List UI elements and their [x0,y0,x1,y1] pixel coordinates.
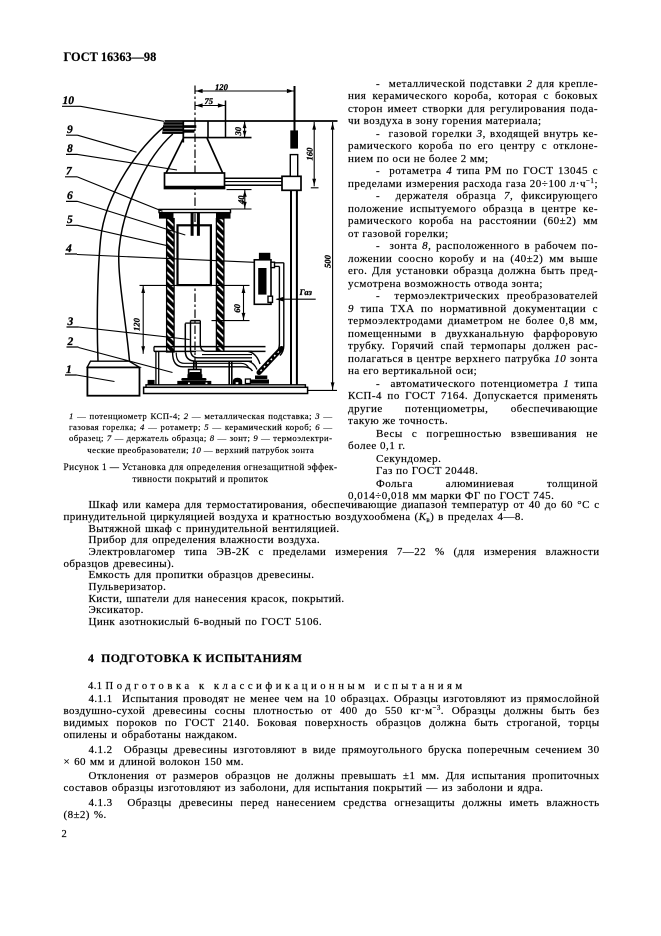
svg-text:75: 75 [205,96,214,106]
svg-text:120: 120 [215,82,229,92]
svg-text:10: 10 [63,95,75,107]
svg-text:120: 120 [132,317,142,331]
svg-text:9: 9 [67,124,73,136]
svg-text:8: 8 [67,143,73,155]
svg-text:3: 3 [67,316,74,328]
svg-text:160: 160 [305,147,315,161]
svg-text:6: 6 [67,190,73,202]
svg-text:Газ: Газ [299,287,313,297]
svg-text:30: 30 [233,126,243,136]
svg-text:4: 4 [65,243,72,255]
svg-text:1: 1 [66,364,72,376]
svg-text:2: 2 [67,336,74,348]
svg-text:500: 500 [323,254,333,268]
svg-text:60: 60 [232,303,242,312]
svg-text:7: 7 [66,166,73,178]
svg-text:5: 5 [67,214,73,226]
svg-text:40: 40 [236,195,246,205]
